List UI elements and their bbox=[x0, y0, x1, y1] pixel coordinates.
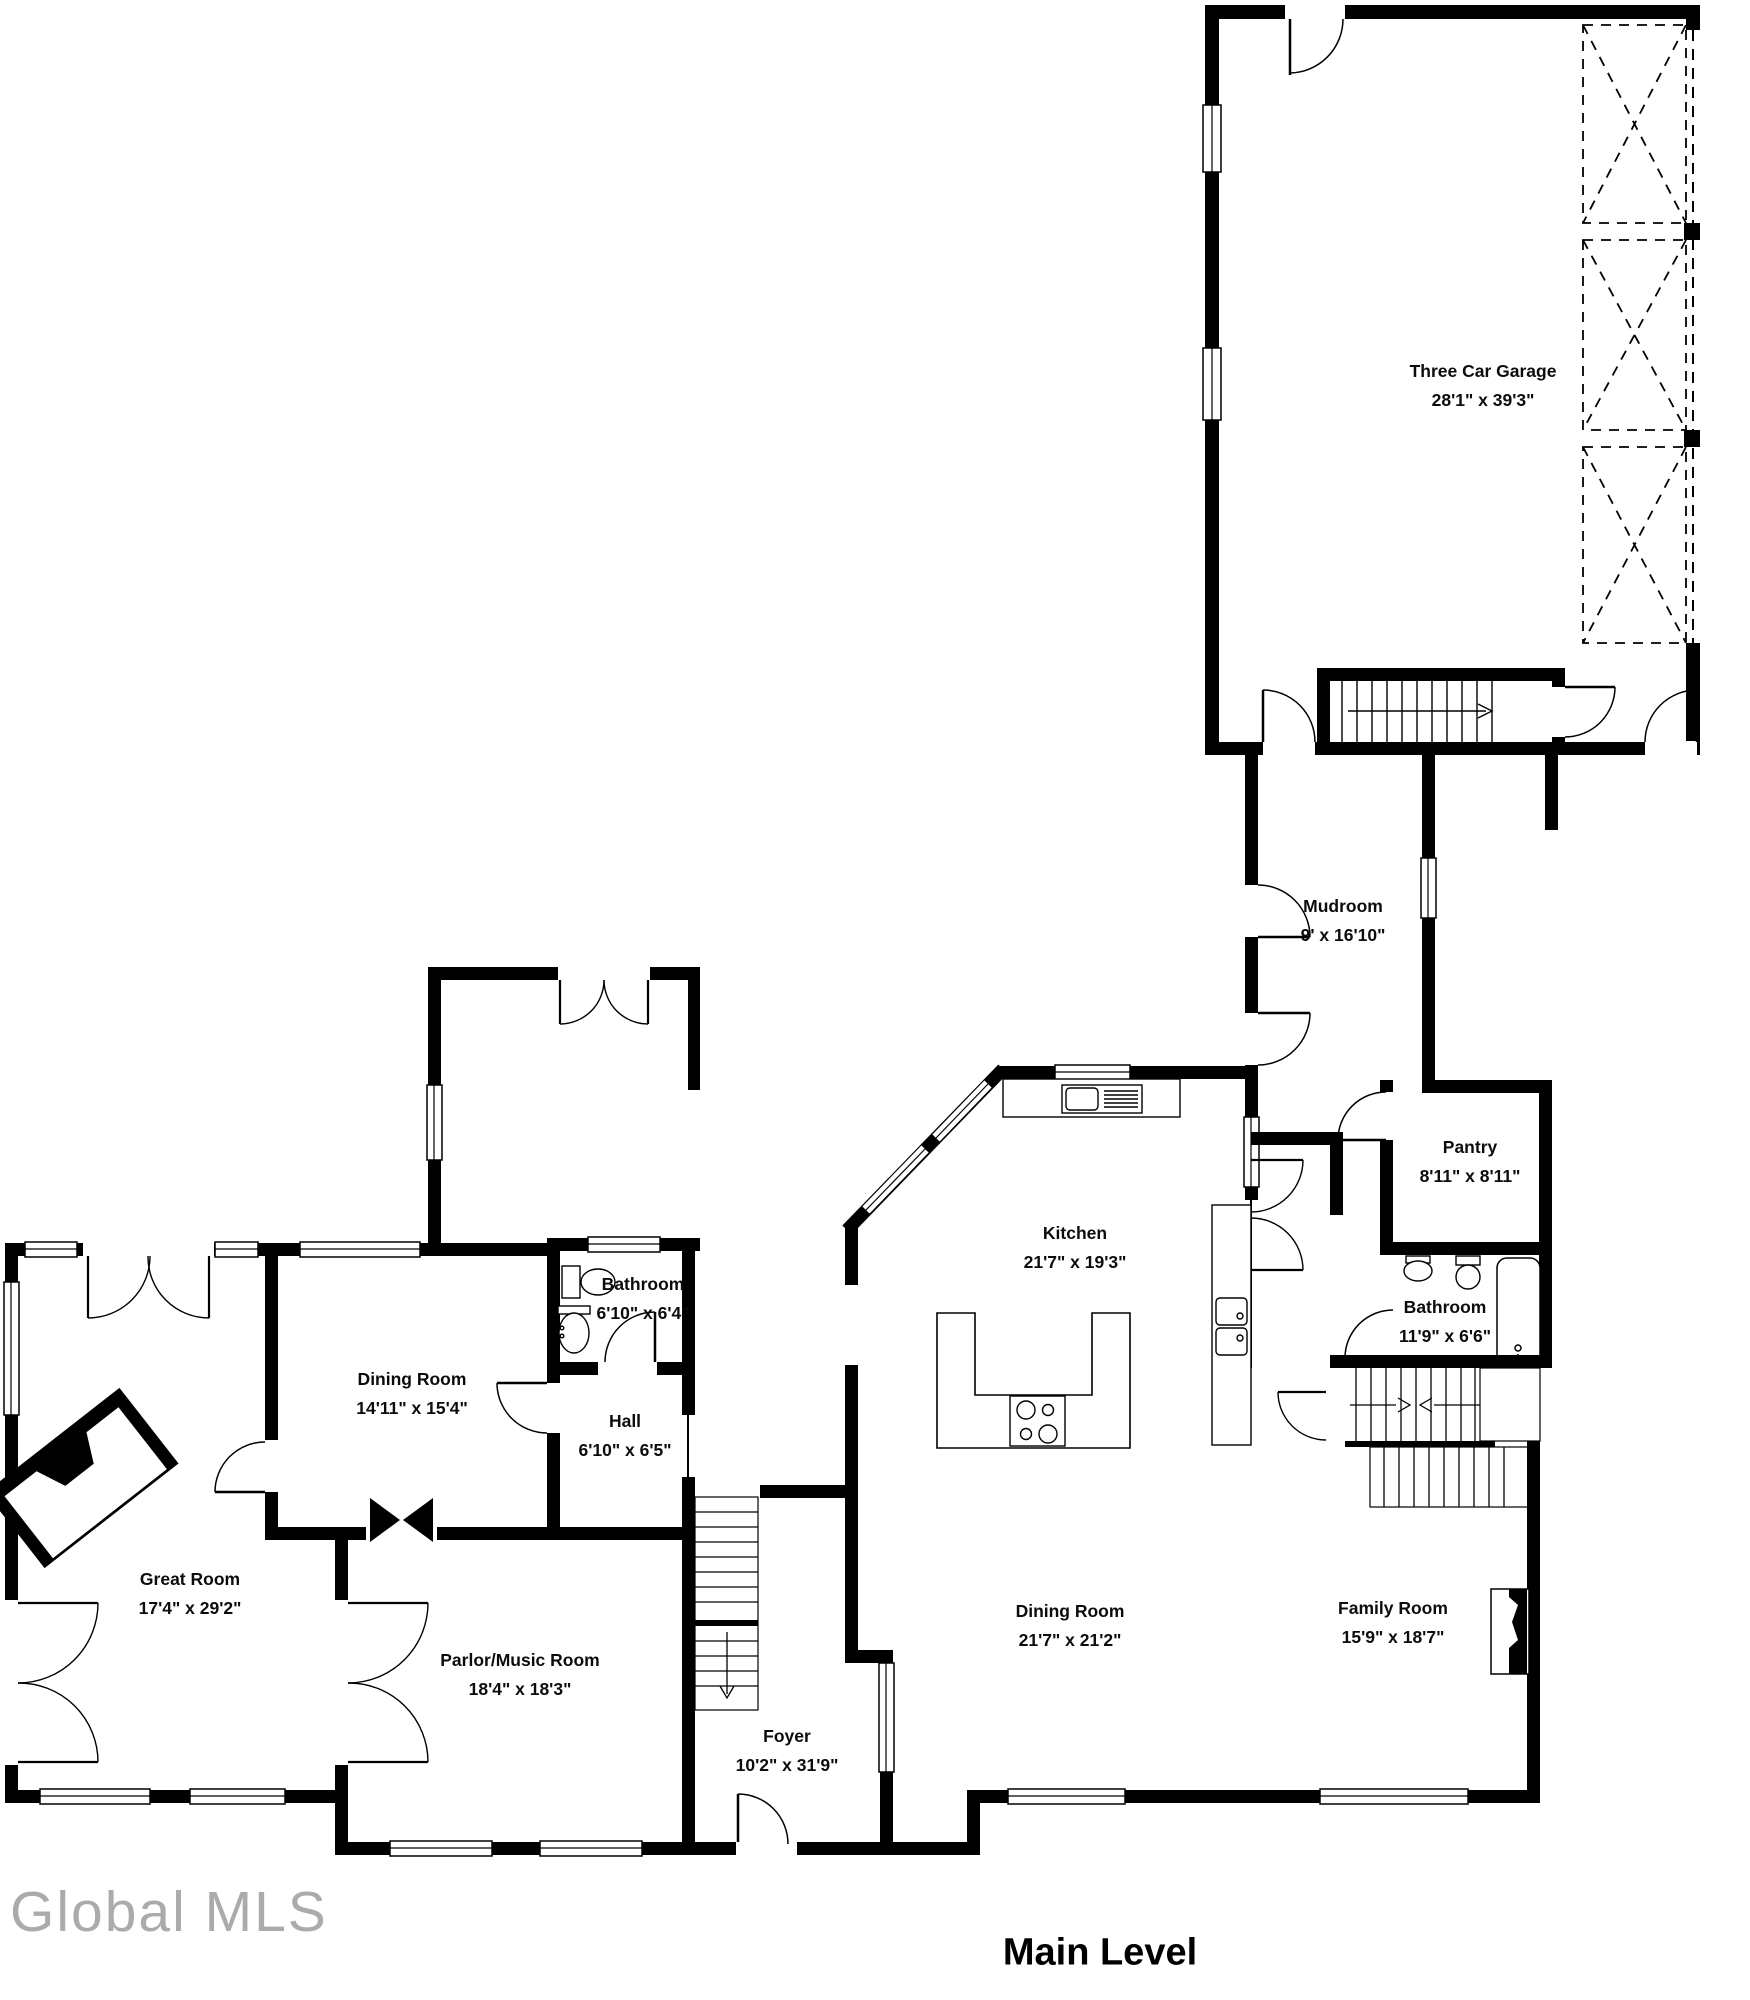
mudroom-structure bbox=[1244, 755, 1558, 1080]
garage-stairs bbox=[1317, 668, 1615, 755]
room-dims: 28'1" x 39'3" bbox=[1432, 392, 1535, 410]
watermark-logo: Global MLS bbox=[10, 1884, 328, 1941]
floor-plan-page: Three Car Garage 28'1" x 39'3" Mudroom 9… bbox=[0, 0, 1750, 2000]
room-dims: 14'11" x 15'4" bbox=[356, 1400, 468, 1418]
garage-door-icon bbox=[1583, 25, 1686, 643]
pocket-door-icon bbox=[366, 1493, 437, 1545]
room-name: Mudroom bbox=[1303, 898, 1383, 916]
room-label-parlor-music-room: Parlor/Music Room 18'4" x 18'3" bbox=[440, 1652, 599, 1698]
room-name: Foyer bbox=[763, 1728, 811, 1746]
foyer-stairs bbox=[695, 1497, 758, 1710]
pedestal-sink-icon bbox=[1404, 1256, 1432, 1281]
prep-sink-icon bbox=[1212, 1205, 1251, 1445]
plan-title: Main Level bbox=[1003, 1932, 1197, 1975]
room-label-pantry: Pantry 8'11" x 8'11" bbox=[1420, 1139, 1521, 1185]
room-name: Dining Room bbox=[358, 1371, 467, 1389]
room-label-hall: Hall 6'10" x 6'5" bbox=[578, 1413, 671, 1459]
toilet-icon bbox=[1456, 1256, 1480, 1289]
great-room-structure bbox=[0, 1242, 345, 1804]
room-label-three-car-garage: Three Car Garage 28'1" x 39'3" bbox=[1410, 363, 1557, 409]
room-dims: 21'7" x 21'2" bbox=[1019, 1632, 1122, 1650]
room-name: Hall bbox=[609, 1413, 641, 1431]
room-dims: 6'10" x 6'5" bbox=[578, 1442, 671, 1460]
floor-plan-drawing bbox=[0, 0, 1750, 2000]
room-label-bathroom-main: Bathroom 11'9" x 6'6" bbox=[1399, 1299, 1491, 1345]
cooktop-icon bbox=[1010, 1396, 1065, 1446]
fireplace-icon bbox=[1491, 1589, 1529, 1674]
room-label-bathroom-small: Bathroom 6'10" x 6'4" bbox=[596, 1276, 689, 1322]
room-dims: 11'9" x 6'6" bbox=[1399, 1328, 1491, 1346]
kitchen-island bbox=[937, 1313, 1130, 1448]
room-name: Three Car Garage bbox=[1410, 363, 1557, 381]
room-name: Kitchen bbox=[1043, 1225, 1107, 1243]
room-dims: 8'11" x 8'11" bbox=[1420, 1168, 1521, 1186]
room-name: Pantry bbox=[1443, 1139, 1497, 1157]
room-label-family-room: Family Room 15'9" x 18'7" bbox=[1338, 1600, 1448, 1646]
room-label-mudroom: Mudroom 9' x 16'10" bbox=[1301, 898, 1386, 944]
room-label-kitchen: Kitchen 21'7" x 19'3" bbox=[1024, 1225, 1127, 1271]
room-dims: 18'4" x 18'3" bbox=[469, 1681, 572, 1699]
room-dims: 21'7" x 19'3" bbox=[1024, 1254, 1127, 1272]
room-label-great-room: Great Room 17'4" x 29'2" bbox=[139, 1571, 242, 1617]
room-name: Bathroom bbox=[1404, 1299, 1487, 1317]
room-dims: 9' x 16'10" bbox=[1301, 927, 1386, 945]
room-name: Bathroom bbox=[602, 1276, 685, 1294]
room-dims: 6'10" x 6'4" bbox=[596, 1305, 689, 1323]
corner-fireplace-icon bbox=[0, 1388, 179, 1568]
back-stairs bbox=[1278, 1368, 1540, 1797]
room-dims: 10'2" x 31'9" bbox=[736, 1757, 839, 1775]
bathtub-icon bbox=[1497, 1258, 1540, 1370]
room-dims: 15'9" x 18'7" bbox=[1342, 1629, 1445, 1647]
entry-structure bbox=[427, 966, 700, 1243]
room-label-dining-room-left: Dining Room 14'11" x 15'4" bbox=[356, 1371, 468, 1417]
room-name: Parlor/Music Room bbox=[440, 1652, 599, 1670]
room-name: Family Room bbox=[1338, 1600, 1448, 1618]
room-label-foyer: Foyer 10'2" x 31'9" bbox=[736, 1728, 839, 1774]
room-name: Dining Room bbox=[1016, 1603, 1125, 1621]
kitchen-sink-icon bbox=[1003, 1079, 1180, 1117]
room-name: Great Room bbox=[140, 1571, 240, 1589]
room-dims: 17'4" x 29'2" bbox=[139, 1600, 242, 1618]
room-label-dining-room-main: Dining Room 21'7" x 21'2" bbox=[1016, 1603, 1125, 1649]
sink-icon bbox=[558, 1306, 590, 1353]
